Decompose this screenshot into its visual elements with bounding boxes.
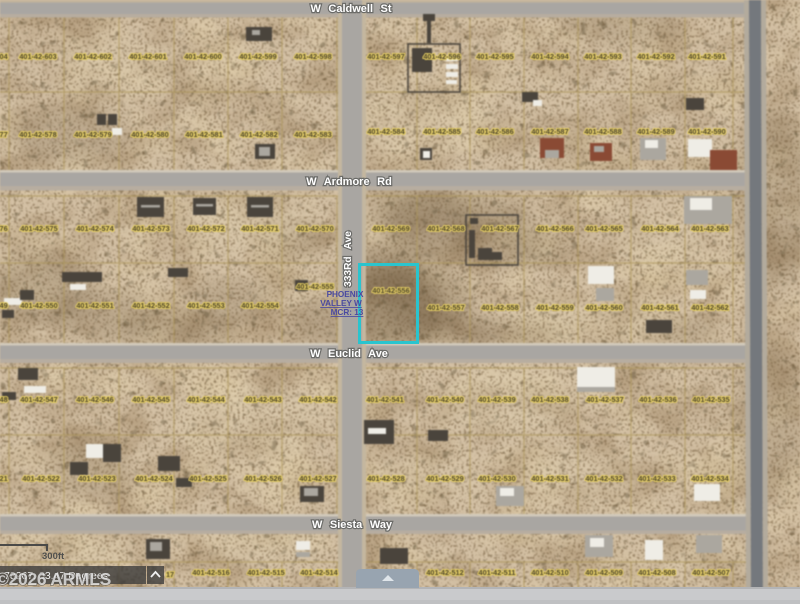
- svg-text:401-42-534: 401-42-534: [691, 474, 729, 483]
- svg-text:401-42-514: 401-42-514: [300, 568, 338, 577]
- svg-text:401-42-526: 401-42-526: [244, 474, 281, 483]
- svg-text:401-42-545: 401-42-545: [132, 395, 169, 404]
- svg-text:401-42-587: 401-42-587: [531, 127, 568, 136]
- svg-text:401-42-583: 401-42-583: [294, 130, 331, 139]
- svg-text:401-42-533: 401-42-533: [638, 474, 675, 483]
- svg-text:401-42-542: 401-42-542: [299, 395, 336, 404]
- svg-text:401-42-591: 401-42-591: [688, 52, 725, 61]
- svg-text:401-42-574: 401-42-574: [76, 224, 114, 233]
- svg-text:401-42-544: 401-42-544: [187, 395, 225, 404]
- svg-text:401-42-585: 401-42-585: [423, 127, 460, 136]
- svg-text:401-42-558: 401-42-558: [481, 303, 518, 312]
- svg-text:401-42-571: 401-42-571: [241, 224, 278, 233]
- svg-text:401-42-560: 401-42-560: [585, 303, 622, 312]
- svg-text:MCR: 13: MCR: 13: [331, 308, 364, 317]
- svg-text:401-42-604: 401-42-604: [0, 52, 9, 61]
- svg-text:401-42-512: 401-42-512: [426, 568, 463, 577]
- svg-text:401-42-529: 401-42-529: [426, 474, 463, 483]
- svg-text:401-42-586: 401-42-586: [476, 127, 513, 136]
- svg-text:401-42-600: 401-42-600: [184, 52, 221, 61]
- svg-text:401-42-570: 401-42-570: [296, 224, 333, 233]
- svg-text:W Euclid Ave: W Euclid Ave: [310, 348, 388, 360]
- svg-text:401-42-515: 401-42-515: [247, 568, 284, 577]
- svg-text:401-42-524: 401-42-524: [135, 474, 173, 483]
- svg-text:401-42-540: 401-42-540: [426, 395, 463, 404]
- svg-text:401-42-523: 401-42-523: [78, 474, 115, 483]
- svg-text:401-42-532: 401-42-532: [585, 474, 622, 483]
- svg-text:401-42-543: 401-42-543: [244, 395, 281, 404]
- svg-text:401-42-553: 401-42-553: [187, 301, 224, 310]
- svg-text:401-42-549: 401-42-549: [0, 301, 8, 310]
- svg-text:300ft: 300ft: [42, 551, 65, 562]
- svg-text:401-42-508: 401-42-508: [638, 568, 675, 577]
- svg-text:401-42-590: 401-42-590: [688, 127, 725, 136]
- svg-text:401-42-507: 401-42-507: [692, 568, 729, 577]
- svg-text:401-42-522: 401-42-522: [22, 474, 59, 483]
- svg-text:401-42-548: 401-42-548: [0, 395, 8, 404]
- svg-text:401-42-531: 401-42-531: [531, 474, 568, 483]
- svg-text:W Siesta Way: W Siesta Way: [312, 519, 393, 531]
- svg-text:401-42-537: 401-42-537: [586, 395, 623, 404]
- svg-text:401-42-602: 401-42-602: [74, 52, 111, 61]
- svg-text:401-42-552: 401-42-552: [132, 301, 169, 310]
- svg-text:401-42-568: 401-42-568: [427, 224, 464, 233]
- svg-text:401-42-597: 401-42-597: [367, 52, 404, 61]
- svg-text:401-42-595: 401-42-595: [476, 52, 513, 61]
- svg-text:401-42-528: 401-42-528: [367, 474, 404, 483]
- svg-text:401-42-593: 401-42-593: [584, 52, 621, 61]
- svg-text:401-42-596: 401-42-596: [423, 52, 460, 61]
- svg-text:401-42-563: 401-42-563: [691, 224, 728, 233]
- svg-text:401-42-594: 401-42-594: [531, 52, 569, 61]
- svg-text:401-42-511: 401-42-511: [479, 568, 516, 577]
- svg-text:17: 17: [166, 570, 174, 579]
- svg-text:401-42-599: 401-42-599: [239, 52, 276, 61]
- svg-text:401-42-564: 401-42-564: [641, 224, 679, 233]
- svg-text:401-42-551: 401-42-551: [76, 301, 113, 310]
- svg-text:401-42-509: 401-42-509: [585, 568, 622, 577]
- svg-text:401-42-579: 401-42-579: [74, 130, 111, 139]
- svg-text:401-42-516: 401-42-516: [192, 568, 229, 577]
- svg-text:401-42-601: 401-42-601: [129, 52, 166, 61]
- svg-text:401-42-527: 401-42-527: [299, 474, 336, 483]
- svg-text:401-42-547: 401-42-547: [20, 395, 57, 404]
- svg-text:401-42-561: 401-42-561: [641, 303, 678, 312]
- svg-text:401-42-559: 401-42-559: [536, 303, 573, 312]
- svg-text:401-42-566: 401-42-566: [536, 224, 573, 233]
- svg-text:©2026 ARMLS: ©2026 ARMLS: [0, 569, 111, 589]
- svg-text:401-42-562: 401-42-562: [691, 303, 728, 312]
- svg-text:401-42-536: 401-42-536: [639, 395, 676, 404]
- svg-text:401-42-567: 401-42-567: [481, 224, 518, 233]
- svg-text:401-42-578: 401-42-578: [19, 130, 56, 139]
- svg-text:401-42-575: 401-42-575: [20, 224, 57, 233]
- svg-text:401-42-577: 401-42-577: [0, 130, 8, 139]
- svg-text:401-42-580: 401-42-580: [131, 130, 168, 139]
- svg-text:401-42-538: 401-42-538: [531, 395, 568, 404]
- svg-text:W Ardmore Rd: W Ardmore Rd: [306, 176, 392, 188]
- svg-text:401-42-589: 401-42-589: [637, 127, 674, 136]
- svg-text:401-42-603: 401-42-603: [19, 52, 56, 61]
- svg-text:401-42-530: 401-42-530: [478, 474, 515, 483]
- svg-text:401-42-592: 401-42-592: [637, 52, 674, 61]
- svg-text:401-42-582: 401-42-582: [240, 130, 277, 139]
- svg-text:401-42-576: 401-42-576: [0, 224, 8, 233]
- svg-text:PHOENIX: PHOENIX: [327, 290, 364, 299]
- svg-text:401-42-573: 401-42-573: [132, 224, 169, 233]
- svg-text:401-42-572: 401-42-572: [187, 224, 224, 233]
- svg-text:401-42-581: 401-42-581: [185, 130, 222, 139]
- svg-text:401-42-565: 401-42-565: [585, 224, 622, 233]
- svg-text:401-42-584: 401-42-584: [367, 127, 405, 136]
- svg-text:401-42-510: 401-42-510: [531, 568, 568, 577]
- svg-text:W Caldwell St: W Caldwell St: [310, 3, 391, 15]
- svg-text:401-42-588: 401-42-588: [584, 127, 621, 136]
- svg-text:401-42-554: 401-42-554: [241, 301, 279, 310]
- svg-text:401-42-525: 401-42-525: [189, 474, 226, 483]
- svg-text:333Rd Ave: 333Rd Ave: [343, 231, 354, 287]
- svg-text:401-42-557: 401-42-557: [427, 303, 464, 312]
- svg-text:401-42-541: 401-42-541: [366, 395, 403, 404]
- svg-text:VALLEY W: VALLEY W: [320, 299, 362, 308]
- svg-text:401-42-535: 401-42-535: [692, 395, 729, 404]
- svg-text:401-42-550: 401-42-550: [20, 301, 57, 310]
- svg-text:401-42-556: 401-42-556: [372, 286, 409, 295]
- svg-text:401-42-569: 401-42-569: [372, 224, 409, 233]
- svg-text:401-42-598: 401-42-598: [294, 52, 331, 61]
- svg-text:401-42-539: 401-42-539: [478, 395, 515, 404]
- svg-text:401-42-546: 401-42-546: [76, 395, 113, 404]
- svg-text:401-42-521: 401-42-521: [0, 474, 8, 483]
